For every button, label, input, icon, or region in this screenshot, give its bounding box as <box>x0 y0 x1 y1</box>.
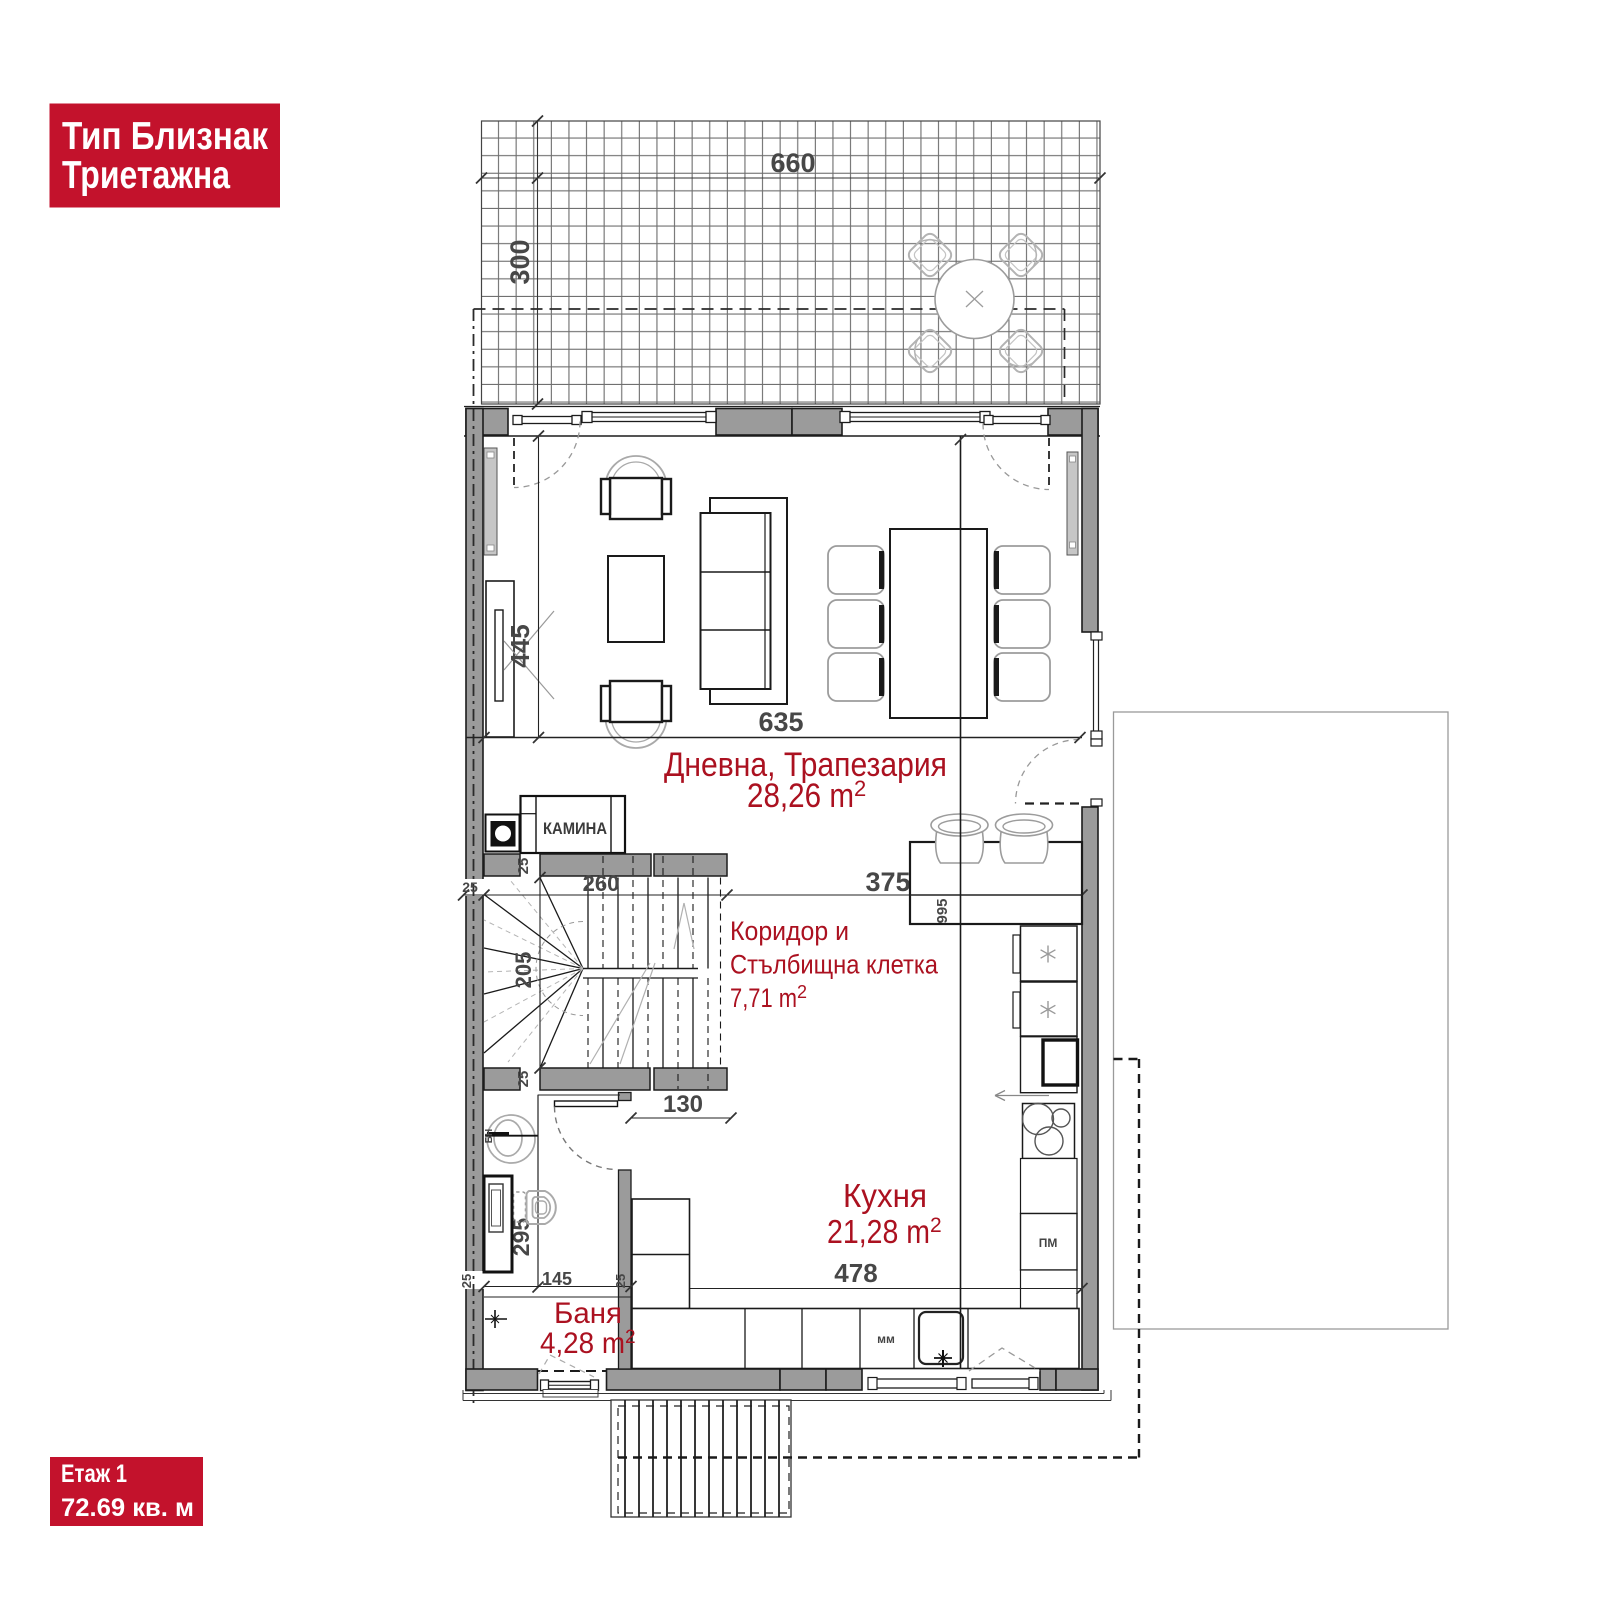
svg-text:25: 25 <box>515 1071 532 1088</box>
svg-text:635: 635 <box>758 707 803 737</box>
svg-text:Триетажна: Триетажна <box>62 154 230 197</box>
svg-text:25: 25 <box>459 1274 474 1288</box>
svg-text:130: 130 <box>663 1091 703 1118</box>
svg-text:ПМ: ПМ <box>1039 1236 1058 1250</box>
svg-text:445: 445 <box>505 624 535 667</box>
svg-text:660: 660 <box>770 148 815 178</box>
svg-text:Баня: Баня <box>554 1297 622 1330</box>
svg-text:мм: мм <box>877 1332 895 1346</box>
svg-text:21,28 m2: 21,28 m2 <box>827 1213 942 1250</box>
svg-text:25: 25 <box>613 1274 628 1288</box>
svg-text:25: 25 <box>515 858 532 875</box>
svg-text:478: 478 <box>834 1258 877 1288</box>
svg-text:205: 205 <box>511 952 536 989</box>
svg-text:Кухня: Кухня <box>843 1177 927 1214</box>
svg-text:4,28 m2: 4,28 m2 <box>540 1327 636 1360</box>
svg-text:995: 995 <box>934 898 951 923</box>
svg-text:28,26 m2: 28,26 m2 <box>747 776 866 815</box>
svg-text:Етаж 1: Етаж 1 <box>61 1460 127 1488</box>
svg-text:375: 375 <box>865 867 910 897</box>
svg-text:Тип Близнак: Тип Близнак <box>62 115 268 158</box>
svg-text:7,71 m2: 7,71 m2 <box>730 982 807 1013</box>
svg-text:145: 145 <box>542 1269 572 1289</box>
svg-text:25: 25 <box>462 879 478 895</box>
svg-text:Коридор и: Коридор и <box>730 916 849 946</box>
svg-text:КАМИНА: КАМИНА <box>543 819 607 838</box>
svg-text:БН: БН <box>484 1129 495 1143</box>
svg-text:72.69 кв. м: 72.69 кв. м <box>61 1494 194 1522</box>
svg-text:300: 300 <box>505 239 535 284</box>
svg-text:260: 260 <box>583 871 620 896</box>
svg-text:Стълбищна клетка: Стълбищна клетка <box>730 950 939 980</box>
